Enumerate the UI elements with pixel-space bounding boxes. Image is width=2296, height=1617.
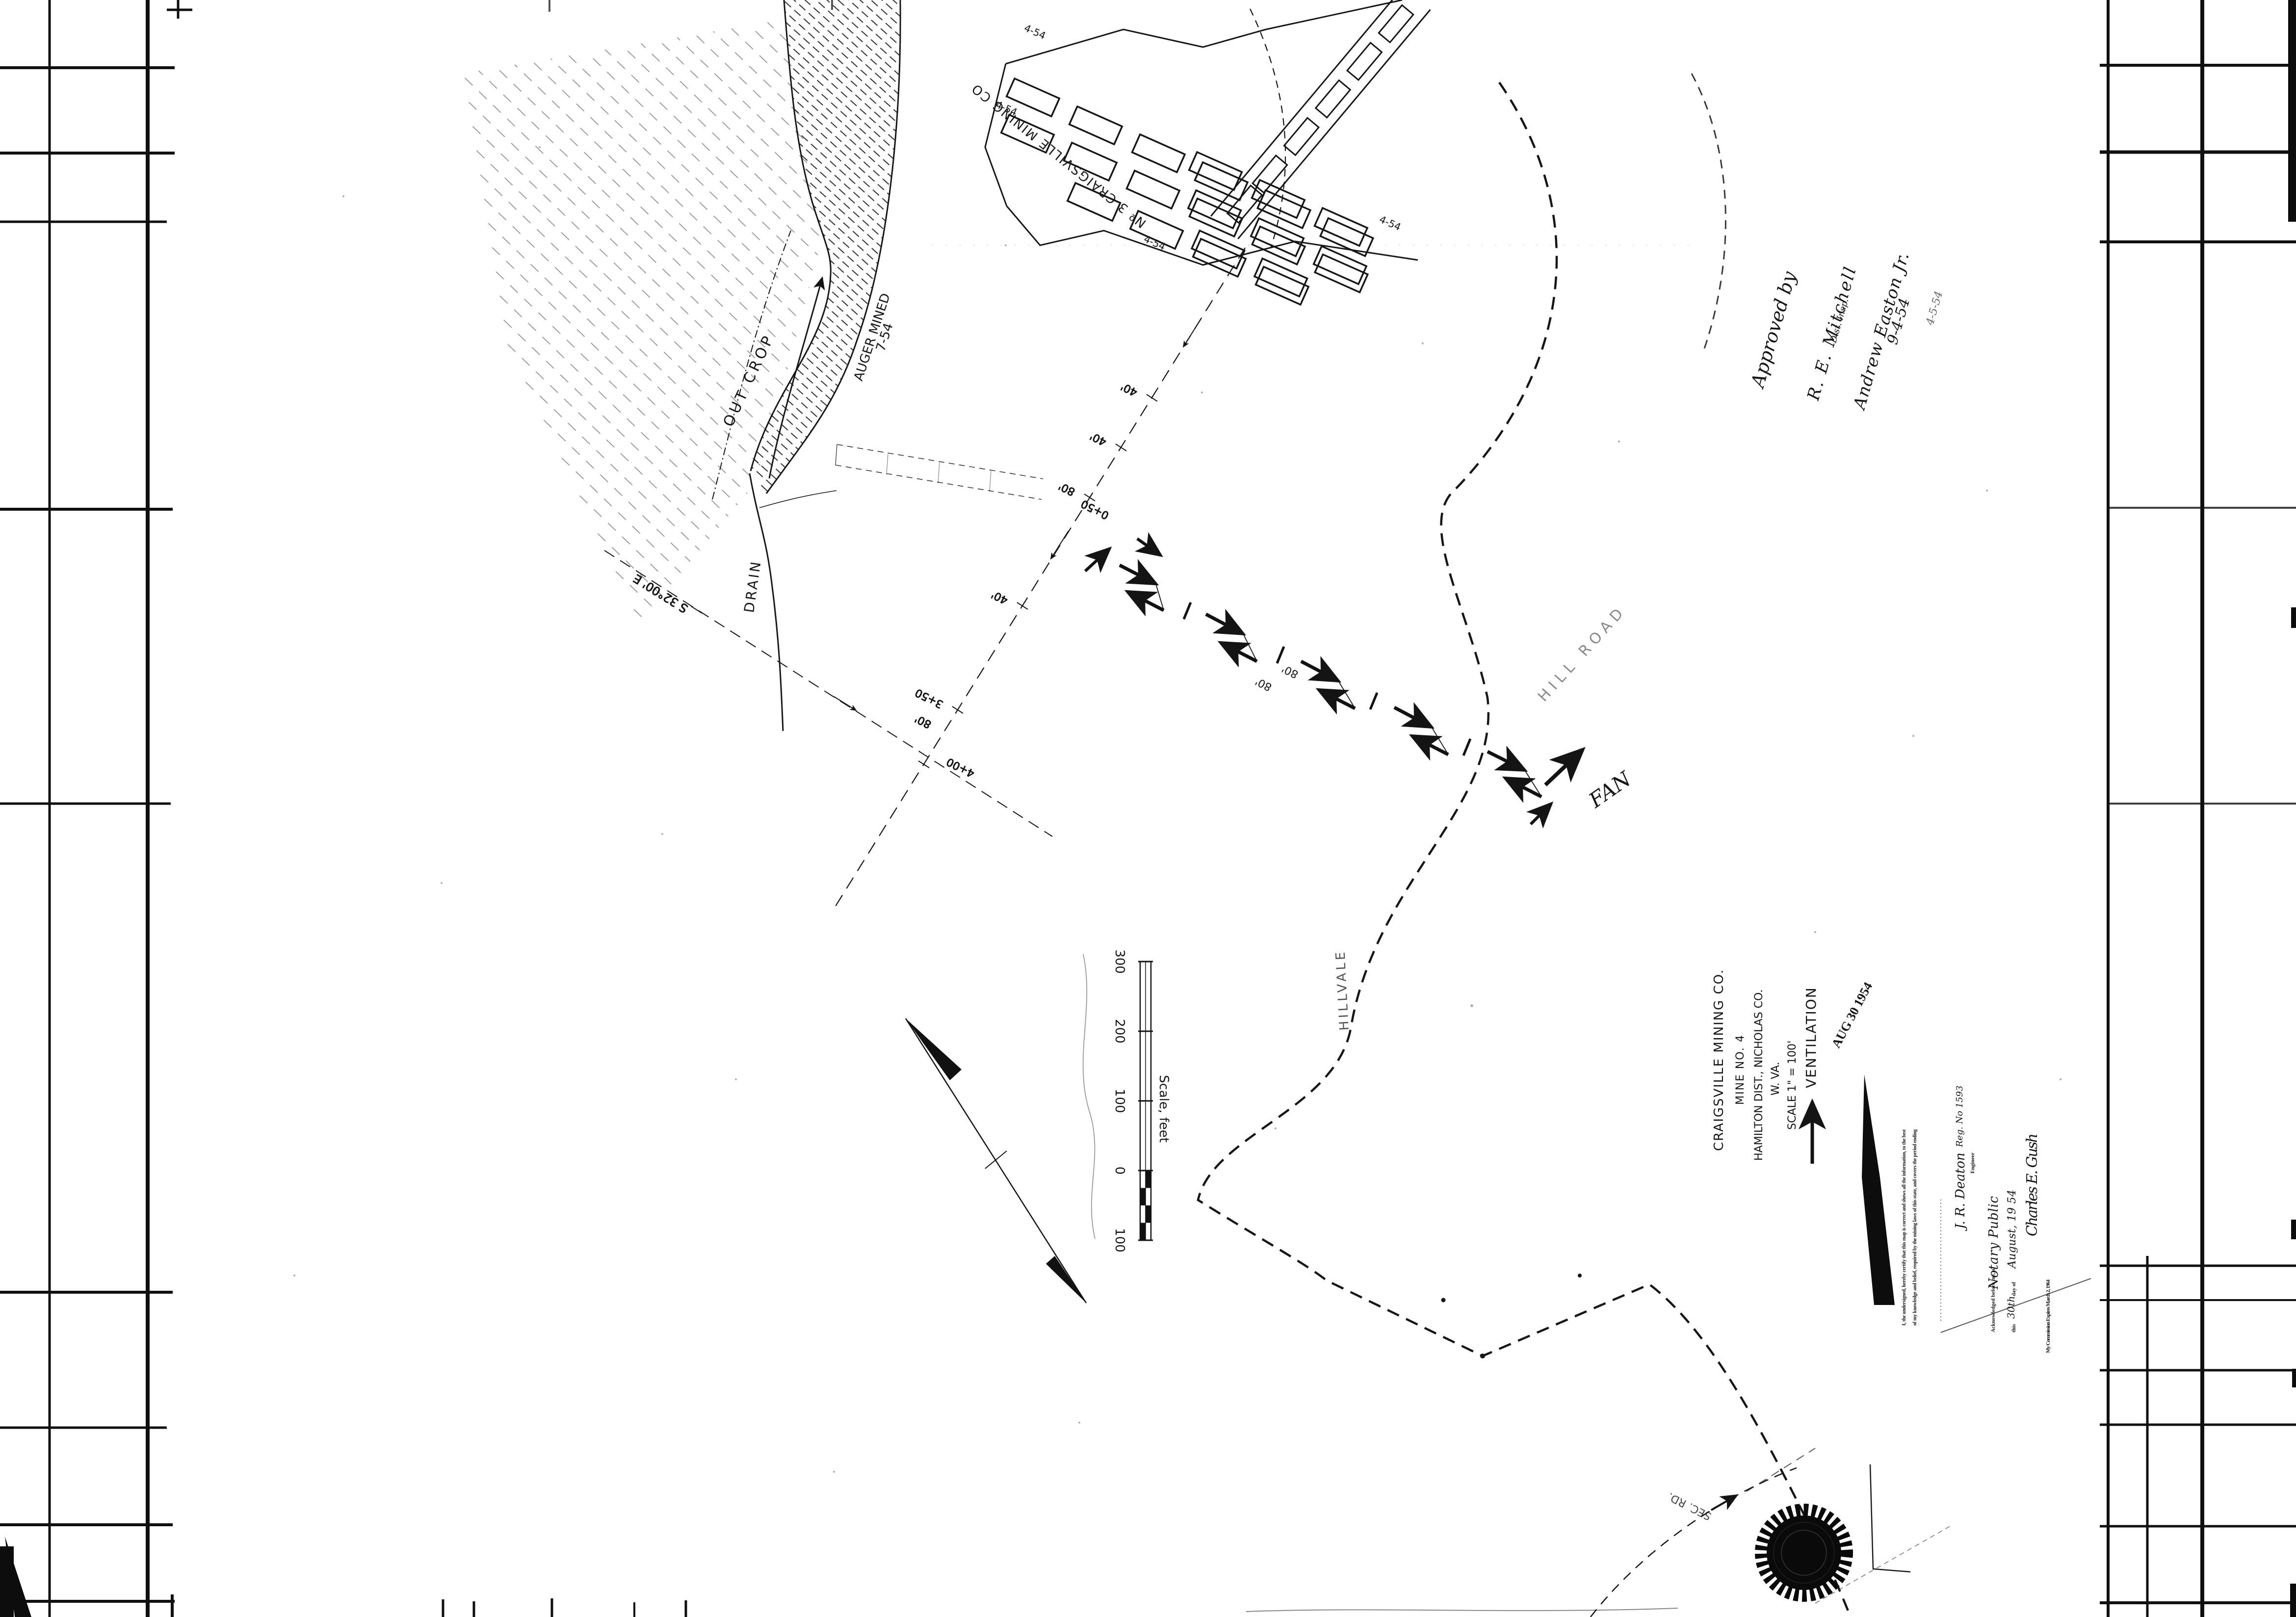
station-label: 40' bbox=[1119, 380, 1140, 398]
notary-role-handwritten: Notary Public bbox=[1986, 1196, 2001, 1290]
hillvale-label: HILLVALE bbox=[1333, 949, 1352, 1031]
day-of-word: day of bbox=[2011, 1282, 2017, 1296]
vent-dim-label: 80' bbox=[1280, 662, 1301, 680]
title-block: CRAIGSVILLE MINING CO. MINE NO. 4 HAMILT… bbox=[1712, 969, 1895, 1305]
commission-expiry: My Commission Expires March 2, 1964 bbox=[2045, 1279, 2051, 1354]
title-company: CRAIGSVILLE MINING CO. bbox=[1712, 969, 1726, 1151]
certificate-body-1: I, the undersigned, hereby certify that … bbox=[1902, 1129, 1907, 1326]
scanned-mine-map-sheet: OUT CROP AUGER MINED 7-54 DRAIN Nº 3 CRA… bbox=[0, 0, 2296, 1617]
day-handwritten: 30th bbox=[2005, 1296, 2017, 1319]
vent-dim-label: 80' bbox=[1253, 675, 1274, 693]
property-boundary bbox=[1198, 82, 1851, 1617]
workings-date-4: 4-54 bbox=[1142, 233, 1167, 253]
date-stamp: AUG 30 1954 bbox=[1829, 979, 1876, 1050]
approval-line-5: 4-5-54 bbox=[1924, 290, 1945, 327]
scale-tick: 200 bbox=[1112, 1019, 1127, 1043]
outcrop-hatch-band bbox=[461, 0, 900, 624]
scale-bar-checker bbox=[1140, 1171, 1151, 1240]
station-label: 3+50 bbox=[913, 686, 945, 710]
film-edge-ticks bbox=[167, 0, 1678, 1617]
certificate-block: I, the undersigned, hereby certify that … bbox=[1815, 1086, 2051, 1603]
scale-tick: 0 bbox=[1112, 1167, 1127, 1175]
approval-line-1: Approved by bbox=[1747, 269, 1800, 391]
fan-arrow bbox=[1545, 750, 1583, 785]
title-state: W. VA. bbox=[1770, 1062, 1782, 1095]
film-grid-left bbox=[0, 0, 175, 1617]
mine-no3-workings: Nº 3 CRAIGSVILLE MINING CO 4-54 4-54 4-5… bbox=[968, 0, 1430, 325]
title-scale: SCALE 1" = 100' bbox=[1786, 1041, 1799, 1130]
notary-signature: Charles E. Gush bbox=[2024, 1133, 2041, 1236]
month-year-handwritten: August, 19 54 bbox=[2006, 1190, 2018, 1269]
scale-bar: 300 200 100 0 100 Scale, feet bbox=[1112, 949, 1171, 1252]
fold-mark bbox=[1862, 1074, 1895, 1305]
engineer-signature: J. R. Deaton bbox=[1953, 1152, 1968, 1231]
north-arrow bbox=[906, 1018, 1086, 1303]
film-grid-right bbox=[2100, 0, 2296, 1617]
approval-note: Approved by R. E. Mitchell Dist. Insp. A… bbox=[1747, 250, 1946, 413]
notary-seal bbox=[1762, 1511, 1846, 1594]
station-label: 80' bbox=[913, 712, 934, 730]
station-label: 40' bbox=[990, 588, 1010, 606]
drain-group: DRAIN bbox=[741, 473, 836, 731]
sec-road-label: SEC. RD. bbox=[1666, 1490, 1713, 1522]
scale-tick: 100 bbox=[1112, 1228, 1127, 1252]
drain-branch bbox=[759, 491, 836, 508]
certificate-bracket bbox=[1870, 1464, 1910, 1572]
fan-label: FAN bbox=[1584, 766, 1636, 813]
title-map-type: VENTILATION bbox=[1803, 987, 1819, 1088]
scale-tick: 100 bbox=[1112, 1089, 1127, 1113]
station-label: 40' bbox=[1088, 429, 1109, 448]
workings-date-1: 4-54 bbox=[1022, 22, 1047, 42]
certificate-body-2: of my knowledge and belief, required by … bbox=[1912, 1129, 1918, 1326]
this-word: this bbox=[2011, 1324, 2017, 1332]
film-corner-mark bbox=[0, 1537, 31, 1617]
station-label: 4+00 bbox=[945, 755, 977, 780]
engineer-reg-no: Reg. No 1593 bbox=[1955, 1086, 1965, 1148]
station-label: 80' bbox=[1057, 479, 1077, 498]
hill-road-label: HILL ROAD bbox=[1535, 602, 1630, 705]
workings-date-3: 4-54 bbox=[1378, 213, 1403, 233]
workings-name-label: Nº 3 CRAIGSVILLE MINING CO bbox=[968, 80, 1149, 230]
scale-tick: 300 bbox=[1112, 949, 1127, 974]
drain-label: DRAIN bbox=[741, 559, 764, 614]
contour-squiggle bbox=[1083, 954, 1095, 1239]
scale-title: Scale, feet bbox=[1156, 1075, 1171, 1143]
map-canvas: OUT CROP AUGER MINED 7-54 DRAIN Nº 3 CRA… bbox=[0, 0, 2296, 1617]
title-district: HAMILTON DIST., NICHOLAS CO. bbox=[1753, 990, 1765, 1161]
title-mine: MINE NO. 4 bbox=[1734, 1034, 1747, 1105]
engineer-title: Engineer bbox=[1970, 1152, 1976, 1174]
